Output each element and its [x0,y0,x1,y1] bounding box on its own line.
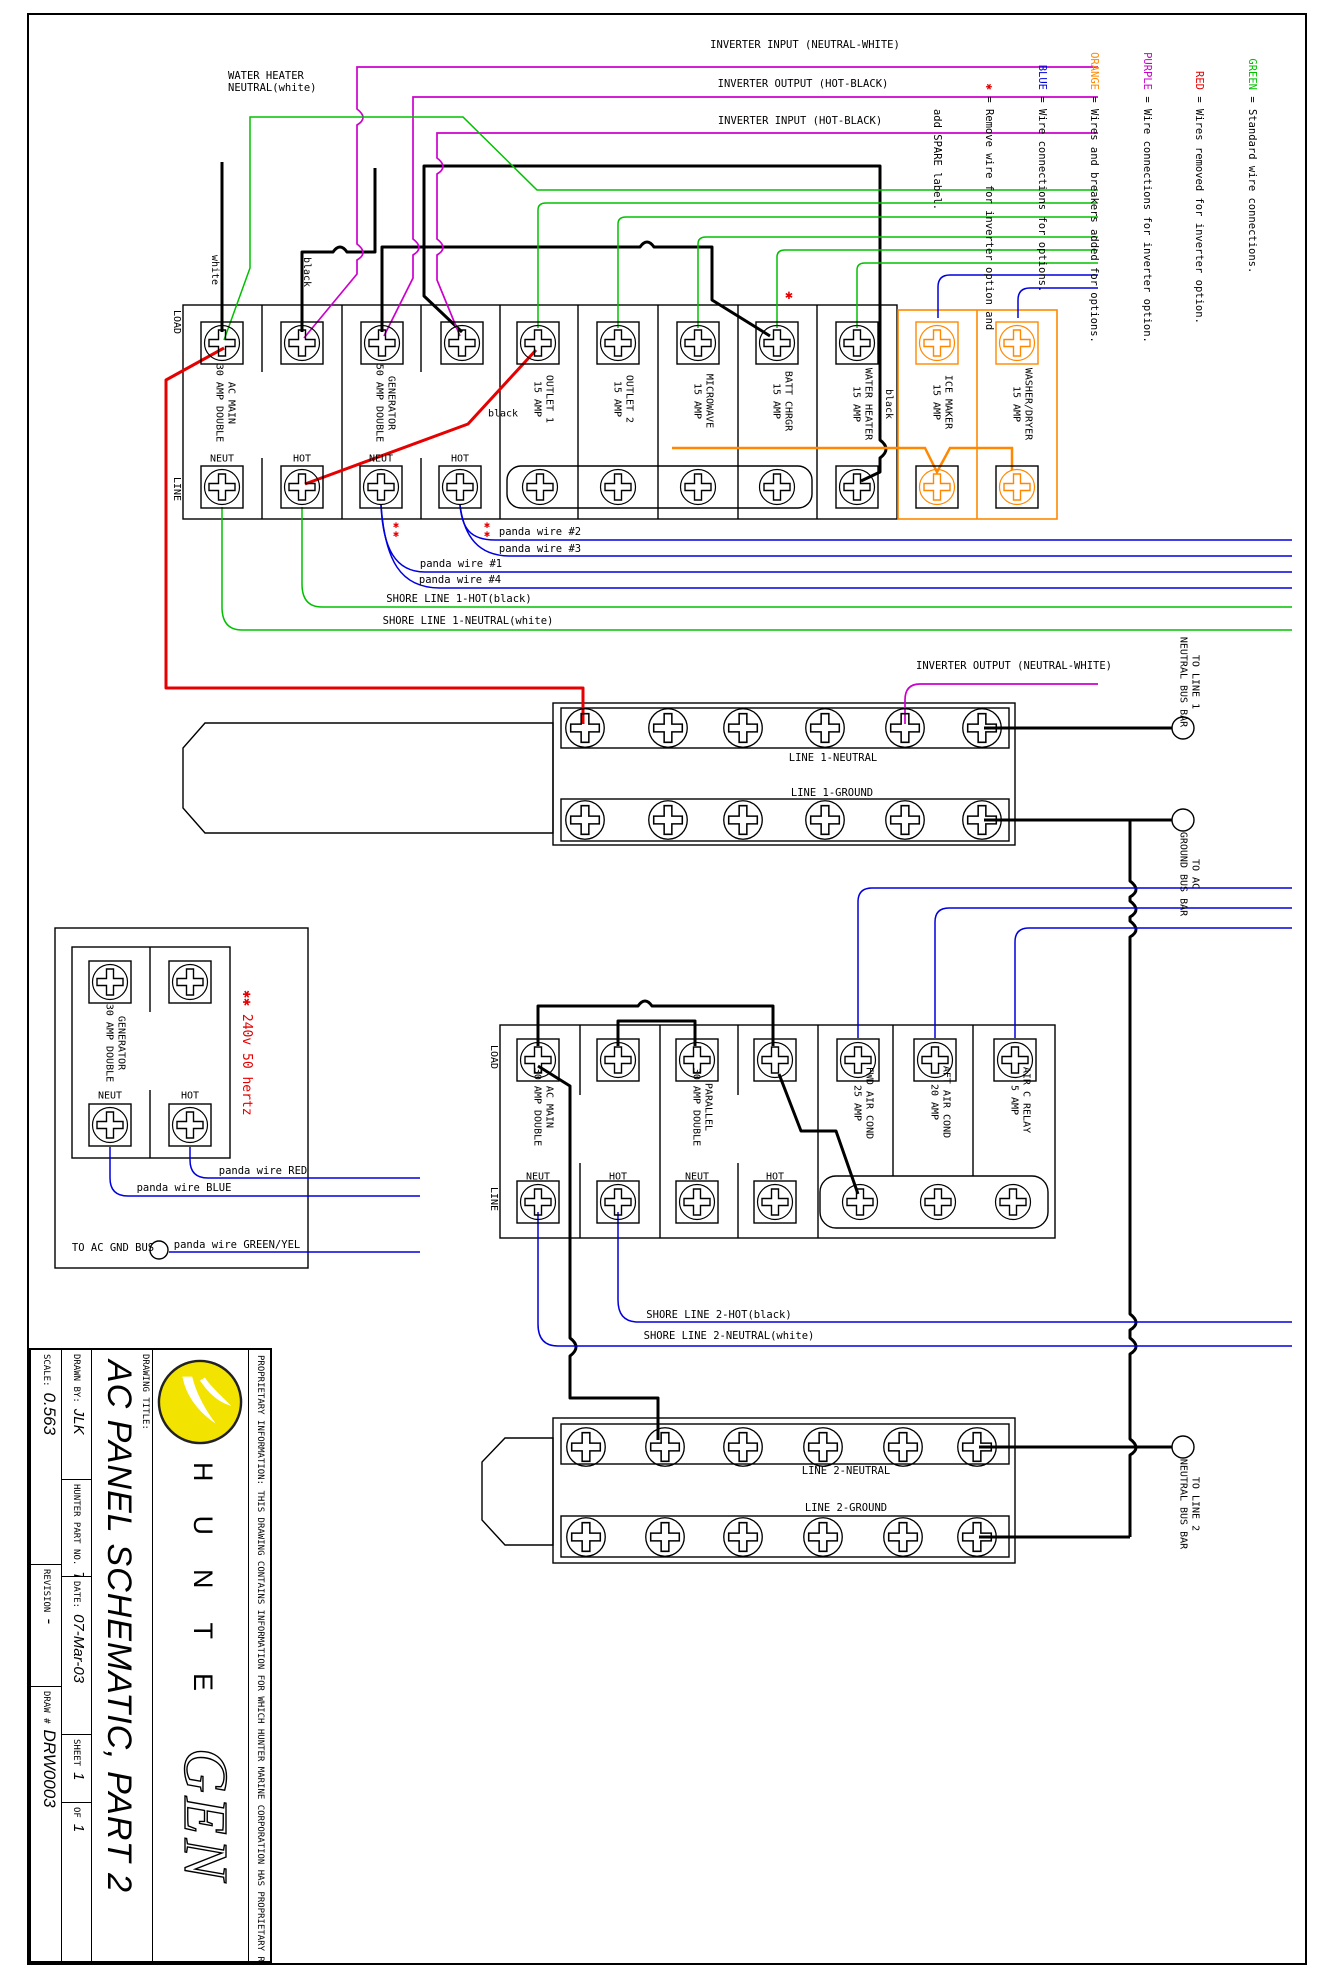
label-panda-wire-greenyel: panda wire GREEN/YEL [174,1239,300,1251]
hot-label: HOT [293,453,311,465]
double-asterisk: ✱ ✱ [393,521,399,539]
label-water-heater-neutral: WATER HEATER NEUTRAL(white) [228,70,317,94]
label-inverter-input-hot: INVERTER INPUT (HOT-BLACK) [718,115,882,127]
breaker-air-c-relay: AIR C RELAY 5 AMP [1009,1067,1032,1133]
of-cell: OF1 [62,1803,91,1961]
legend-line: ORANGE = Wires and breakers added for op… [1085,44,1103,336]
legend-line: GREEN = Standard wire connections. [1243,44,1261,336]
breaker-washer-dryer: WASHER/DRYER 15 AMP [1011,368,1034,440]
breaker-outlet-2: OUTLET 2 15 AMP [612,375,635,423]
breaker-fwd-air-cond: FWD AIR COND 25 AMP [852,1067,875,1139]
hot-label: HOT [609,1171,627,1183]
line1-ground-label: LINE 1-GROUND [791,787,873,799]
label-shore-line2-hot: SHORE LINE 2-HOT(black) [646,1309,791,1321]
line2-ground-label: LINE 2-GROUND [805,1502,887,1514]
label-shore-line1-hot: SHORE LINE 1-HOT(black) [386,593,531,605]
legend-line: PURPLE = Wire connections for inverter o… [1138,44,1156,336]
label-panda-wire-2: panda wire #2 [499,526,581,538]
breaker-generator: GENERATOR 50 AMP DOUBLE [374,364,397,442]
top-panel-line: LINE [170,477,182,501]
label-inverter-input-neutral: INVERTER INPUT (NEUTRAL-WHITE) [710,39,900,51]
label-panda-wire-1: panda wire #1 [420,558,502,570]
title-block: PROPRIETARY INFORMATION: THIS DRAWING CO… [29,1348,272,1963]
label-inverter-output-hot: INVERTER OUTPUT (HOT-BLACK) [718,78,889,90]
legend-line: BLUE = Wire connections for options. [1033,44,1051,336]
drawing-title-label: DRAWING TITLE: [140,1354,150,1430]
lower-panel-load: LOAD [487,1045,499,1069]
logo-letters: HUNTE [187,1462,218,1725]
label-black-wire: black [882,389,894,419]
lower-panel-line: LINE [487,1187,499,1211]
color-legend: GREEN = Standard wire connections. RED =… [1169,44,1295,336]
part-no-cell: HUNTER PART NO.TBD [62,1480,91,1577]
date-cell: DATE:07-Mar-03 [62,1577,91,1735]
label-white-wire: white [208,255,220,285]
schematic-sheet: GREEN = Standard wire connections. RED =… [0,0,1320,1980]
hot-label: HOT [181,1090,199,1102]
breaker-water-heater: WATER HEATER 15 AMP [851,368,874,440]
label-panda-wire-red: panda wire RED [219,1165,308,1177]
neut-label: NEUT [98,1090,122,1102]
to-ac-ground-bus: TO AC GROUND BUS BAR [1178,832,1201,916]
neut-label: NEUT [210,453,234,465]
label-panda-wire-blue: panda wire BLUE [137,1182,232,1194]
breaker-outlet-1: OUTLET 1 15 AMP [532,375,555,423]
breaker-batt-chrgr: BATT CHRGR 15 AMP [771,371,794,431]
label-panda-wire-4: panda wire #4 [419,574,501,586]
hunter-logo: HUNTE GEN [152,1350,248,1961]
legend-line: RED = Wires removed for inverter option. [1190,44,1208,336]
neut-label: NEUT [685,1171,709,1183]
note-240v-50hz: ✱✱ 240v 50 hertz [240,990,252,1115]
sheet-cell: SHEET1 [62,1735,91,1803]
breaker-parallel: PARALLEL 30 AMP DOUBLE [691,1068,714,1146]
drawn-by-cell: DRAWN BY:JLK [62,1350,91,1480]
breaker-ice-maker: ICE MAKER 15 AMP [931,375,954,429]
drawing-title: AC PANEL SCHEMATIC, PART 2 [99,1360,138,1893]
spare-asterisk: ✱ [785,290,793,302]
legend-line: add SPARE label. [928,44,946,336]
bus-terminals [1172,717,1194,1458]
scale-cell: SCALE:0.563 [29,1350,61,1565]
label-inverter-output-neutral: INVERTER OUTPUT (NEUTRAL-WHITE) [916,660,1112,672]
label-panda-wire-3: panda wire #3 [499,543,581,555]
to-line1-neutral-bus: TO LINE 1 NEUTRAL BUS BAR [1178,637,1201,727]
breaker-ac-main: AC MAIN 30 AMP DOUBLE [214,364,237,442]
double-asterisk: ✱ ✱ [484,521,490,539]
line1-neutral-label: LINE 1-NEUTRAL [789,752,878,764]
breaker-ac-main-lower: AC MAIN 30 AMP DOUBLE [532,1068,555,1146]
line2-neutral-label: LINE 2-NEUTRAL [802,1465,891,1477]
to-line2-neutral-bus: TO LINE 2 NEUTRAL BUS BAR [1178,1459,1201,1549]
lower-breaker-panel [500,1025,1055,1238]
label-shore-line1-neutral: SHORE LINE 1-NEUTRAL(white) [383,615,554,627]
neut-label: NEUT [369,453,393,465]
neut-label: NEUT [526,1171,550,1183]
label-black-wire: black [488,408,518,420]
breaker-microwave: MICROWAVE 15 AMP [692,374,715,428]
breaker-generator-30: GENERATOR 30 AMP DOUBLE [104,1004,127,1082]
top-panel-load: LOAD [170,310,182,334]
hunter-sail-logo-icon [156,1358,244,1446]
label-shore-line2-neutral: SHORE LINE 2-NEUTRAL(white) [644,1330,815,1342]
logo-gen: GEN [169,1748,240,1884]
draw-no-cell: DRAW #DRW0003 [29,1687,61,1961]
orange-wires [672,448,1012,472]
legend-line: ✱ = Remove wire for inverter option and [980,44,998,336]
label-to-ac-gnd-bus: TO AC GND BUS [72,1242,154,1254]
breaker-aft-air-cond: AFT AIR COND 20 AMP [929,1066,952,1138]
revision-cell: REVISION- [29,1565,61,1687]
label-black-wire: black [300,257,312,287]
hot-label: HOT [451,453,469,465]
proprietary-note: PROPRIETARY INFORMATION: THIS DRAWING CO… [248,1350,270,1961]
hot-label: HOT [766,1171,784,1183]
